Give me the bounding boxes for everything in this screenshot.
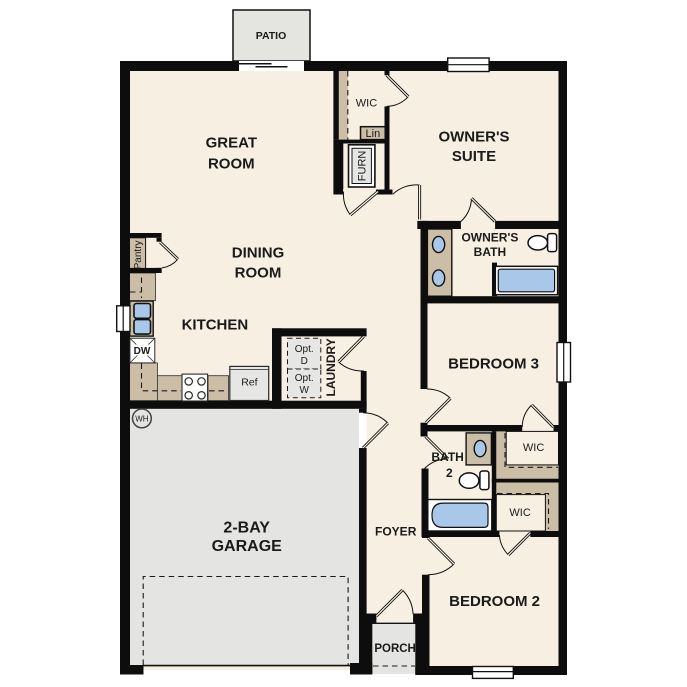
- svg-text:Pantry: Pantry: [133, 240, 144, 269]
- svg-text:Opt.: Opt.: [295, 344, 314, 355]
- svg-text:2-BAY: 2-BAY: [223, 519, 270, 536]
- svg-text:OWNER'S: OWNER'S: [461, 230, 518, 244]
- svg-text:DW: DW: [134, 346, 151, 357]
- svg-text:GREAT: GREAT: [206, 134, 257, 151]
- svg-text:OWNER'S: OWNER'S: [438, 128, 509, 145]
- svg-text:WIC: WIC: [523, 442, 544, 454]
- svg-text:FURN: FURN: [357, 151, 369, 182]
- svg-text:PORCH: PORCH: [374, 643, 416, 655]
- svg-text:WIC: WIC: [509, 507, 530, 519]
- svg-text:D: D: [301, 356, 308, 367]
- svg-text:Opt.: Opt.: [295, 373, 314, 384]
- svg-text:DINING: DINING: [232, 244, 285, 261]
- svg-text:WH: WH: [135, 415, 149, 424]
- svg-text:BEDROOM 2: BEDROOM 2: [449, 593, 540, 610]
- svg-text:Ref: Ref: [241, 377, 257, 389]
- svg-text:BATH: BATH: [431, 450, 463, 464]
- svg-text:BATH: BATH: [474, 245, 506, 259]
- svg-text:Lin: Lin: [366, 128, 381, 140]
- svg-text:GARAGE: GARAGE: [212, 538, 283, 555]
- svg-text:2: 2: [446, 466, 453, 480]
- svg-text:WIC: WIC: [356, 98, 377, 110]
- svg-text:BEDROOM 3: BEDROOM 3: [448, 355, 539, 372]
- svg-text:FOYER: FOYER: [375, 524, 417, 538]
- svg-text:PATIO: PATIO: [256, 30, 287, 42]
- svg-text:SUITE: SUITE: [452, 148, 496, 165]
- svg-text:KITCHEN: KITCHEN: [182, 316, 249, 333]
- svg-text:ROOM: ROOM: [208, 155, 255, 172]
- svg-text:ROOM: ROOM: [235, 264, 282, 281]
- svg-text:LAUNDRY: LAUNDRY: [324, 338, 338, 396]
- svg-text:W: W: [299, 385, 309, 396]
